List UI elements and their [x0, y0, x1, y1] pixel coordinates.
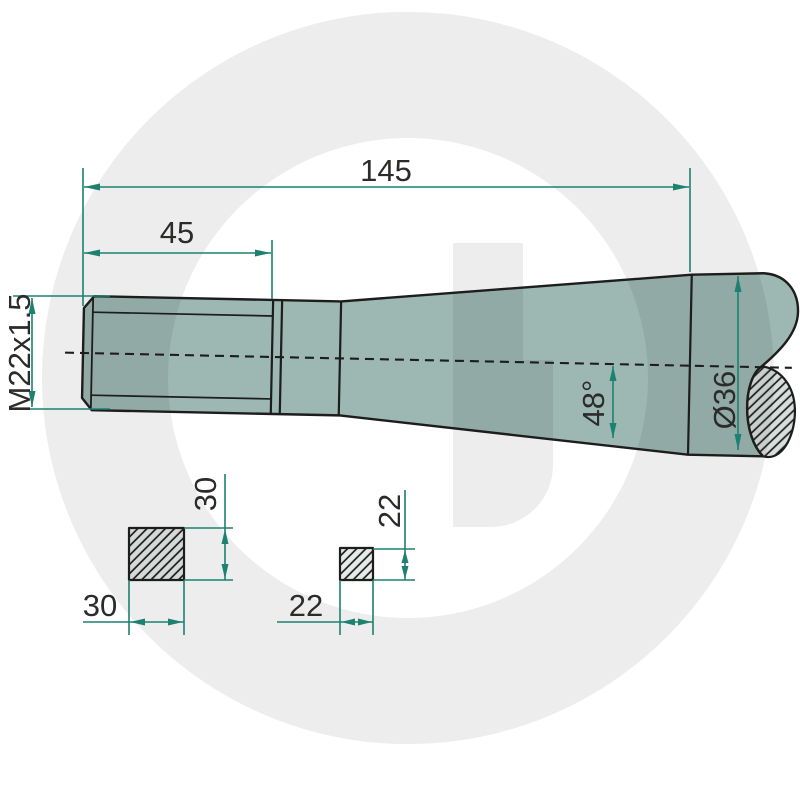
label-taper-angle: 48° [576, 380, 611, 427]
label-square-large-height: 30 [188, 477, 223, 511]
technical-drawing-canvas: 145 45 M22x1.5 48° Ø36 30 30 22 22 [0, 0, 800, 800]
square-section-large-hatch [129, 528, 184, 580]
label-thread-spec: M22x1.5 [2, 294, 37, 413]
square-section-small-hatch [340, 548, 373, 580]
label-square-large-width: 30 [83, 588, 117, 623]
label-thread-length: 45 [160, 215, 194, 250]
label-shaft-diameter: Ø36 [707, 371, 742, 430]
label-square-small-height: 22 [372, 494, 407, 528]
drawing-page: 145 45 M22x1.5 48° Ø36 30 30 22 22 [0, 0, 800, 800]
label-square-small-width: 22 [289, 588, 323, 623]
label-overall-length: 145 [360, 153, 412, 188]
